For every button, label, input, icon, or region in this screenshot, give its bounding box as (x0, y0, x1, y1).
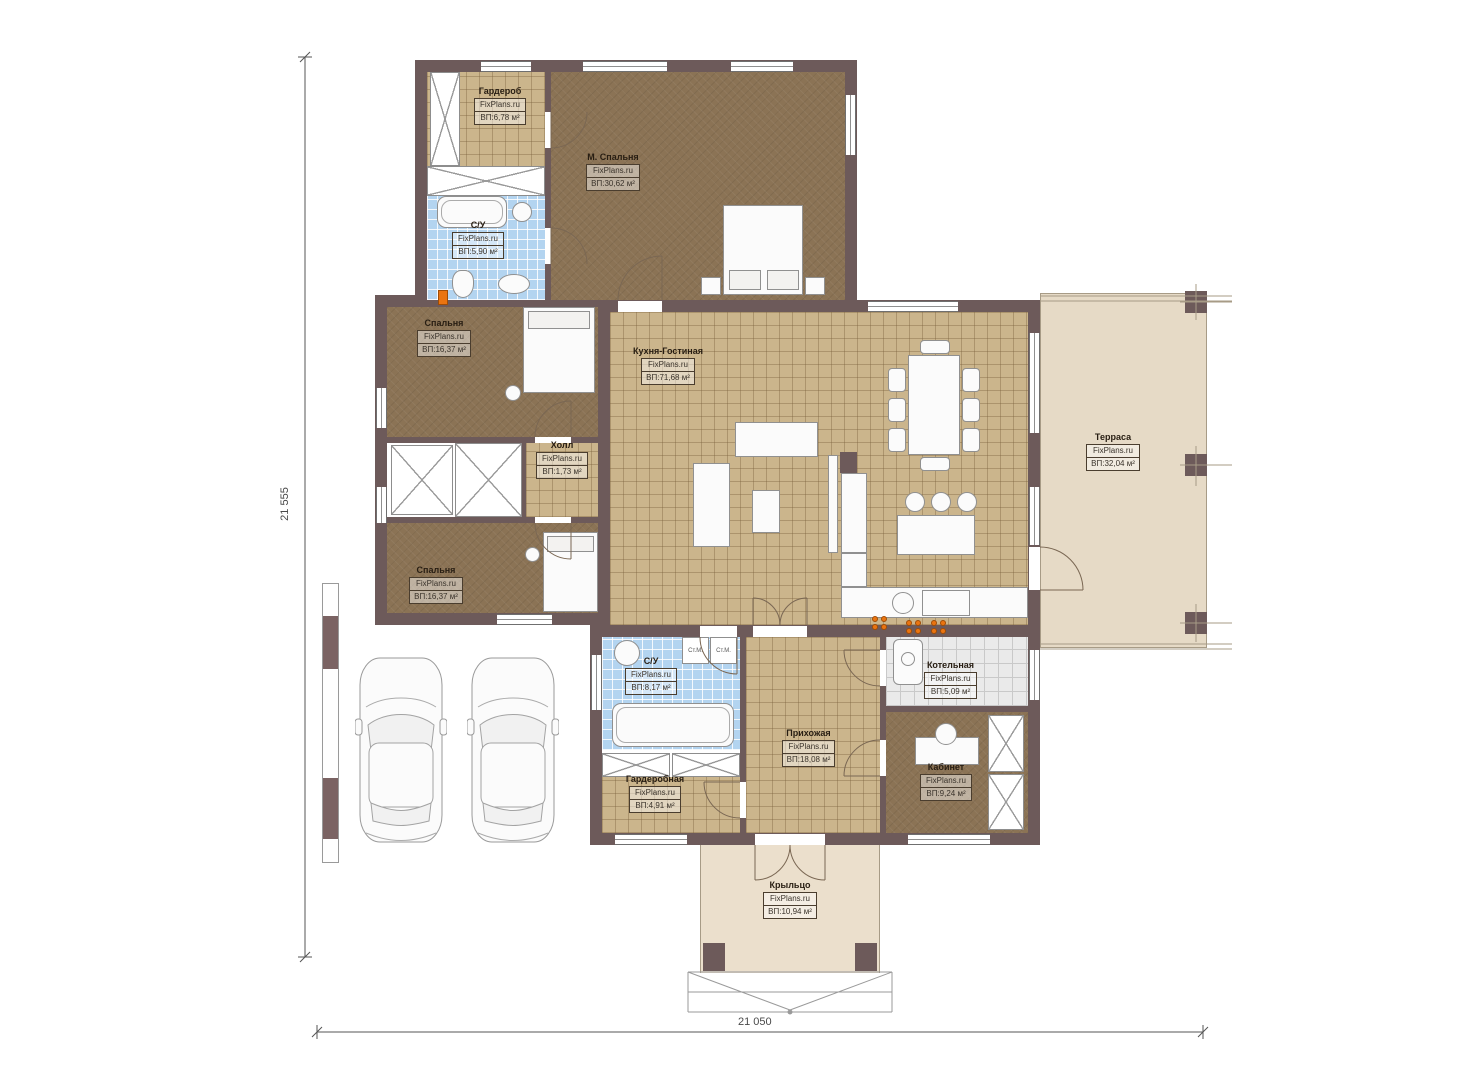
room-name: Спальня (417, 565, 456, 576)
toilet-symbol (452, 270, 474, 298)
room-name: Котельная (927, 660, 974, 671)
room-name: Терраса (1095, 432, 1131, 443)
window (481, 61, 531, 72)
room-name: Спальня (425, 318, 464, 329)
bathtub-symbol (612, 703, 734, 747)
wall-stub (840, 452, 857, 473)
nightstand-symbol (701, 277, 721, 295)
lamp-symbol (525, 547, 540, 562)
sink-symbol (498, 274, 530, 294)
window (497, 614, 552, 625)
room-name: Прихожая (786, 728, 830, 739)
washing-machine-label: Ст.М. (688, 648, 703, 654)
room-label-bedroom2: Спальня FixPlans.ruВП:16,37 м² (386, 565, 486, 604)
stool-symbol (905, 492, 925, 512)
window (1029, 333, 1040, 433)
burner-dot (881, 616, 887, 622)
stool-symbol (957, 492, 977, 512)
room-label-hall: Холл FixPlans.ruВП:1,73 м² (526, 440, 598, 479)
dining-table-symbol (908, 355, 960, 455)
watermark-text: FixPlans.ru (418, 331, 470, 344)
room-area: ВП:5,90 м² (453, 246, 503, 258)
watermark-text: FixPlans.ru (475, 99, 525, 112)
room-label-master: М. Спальня FixPlans.ruВП:30,62 м² (553, 152, 673, 191)
tall-cabinet-symbol (841, 473, 867, 553)
room-label-porch: Крыльцо FixPlans.ruВП:10,94 м² (740, 880, 840, 919)
room-label-terrace: Терраса FixPlans.ruВП:32,04 м² (1058, 432, 1168, 471)
tv-console-symbol (828, 455, 838, 553)
lamp-symbol (505, 385, 521, 401)
room-area: ВП:16,37 м² (418, 344, 470, 356)
chair-symbol (962, 428, 980, 452)
burner-dot (906, 628, 912, 634)
window (376, 487, 387, 523)
pillow-symbol (547, 536, 594, 552)
chair-symbol (920, 340, 950, 354)
wall-partition (886, 706, 1028, 712)
room-label-hallway: Прихожая FixPlans.ruВП:18,08 м² (756, 728, 861, 767)
burner-dot (940, 628, 946, 634)
room-name: С/У (471, 220, 486, 231)
watermark-text: FixPlans.ru (1087, 445, 1139, 458)
room-label-kitchen-living: Кухня-Гостиная FixPlans.ruВП:71,68 м² (608, 346, 728, 385)
window (845, 95, 856, 155)
car-icon (355, 655, 447, 845)
room-label-wardrobe2: Гардеробная FixPlans.ruВП:4,91 м² (600, 774, 710, 813)
watermark-text: FixPlans.ru (537, 453, 587, 466)
chair-symbol (888, 428, 906, 452)
dimension-height: 21 555 (279, 487, 291, 521)
room-label-bedroom1: Спальня FixPlans.ruВП:16,37 м² (394, 318, 494, 357)
wall-partition (387, 517, 535, 523)
room-label-cabinet: Кабинет FixPlans.ruВП:9,24 м² (896, 762, 996, 801)
closet-symbol (391, 445, 453, 515)
window (908, 834, 990, 845)
kitchen-sink-symbol (892, 592, 914, 614)
door-opening (880, 740, 886, 776)
watermark-text: FixPlans.ru (630, 787, 680, 800)
door-opening (880, 650, 886, 686)
watermark-text: FixPlans.ru (783, 741, 835, 754)
sofa-symbol (735, 422, 818, 457)
watermark-text: FixPlans.ru (921, 775, 971, 788)
floor-plan-canvas: Ст.М. Ст.М. (0, 0, 1474, 1080)
chair-symbol (920, 457, 950, 471)
window (1029, 487, 1040, 545)
pillow-symbol (729, 270, 761, 290)
room-name: Крыльцо (770, 880, 811, 891)
room-area: ВП:30,62 м² (587, 178, 639, 190)
window (731, 61, 793, 72)
closet-symbol (427, 166, 545, 196)
chair-symbol (888, 368, 906, 392)
door-opening (753, 626, 807, 637)
island-symbol (897, 515, 975, 555)
room-name: М. Спальня (587, 152, 638, 163)
room-label-boiler: Котельная FixPlans.ruВП:5,09 м² (898, 660, 1003, 699)
room-name: Кабинет (928, 762, 964, 773)
burner-dot (872, 624, 878, 630)
room-area: ВП:9,24 м² (921, 788, 971, 800)
wall-partition (571, 517, 598, 523)
coffee-table-symbol (752, 490, 780, 533)
burner-dot (915, 620, 921, 626)
door-opening (545, 228, 551, 264)
watermark-text: FixPlans.ru (587, 165, 639, 178)
terrace-post (1185, 454, 1207, 476)
room-area: ВП:8,17 м² (626, 682, 676, 694)
room-name: Холл (551, 440, 574, 451)
door-opening (1029, 547, 1040, 590)
dimension-width: 21 050 (738, 1016, 772, 1028)
room-label-su-bottom: С/У FixPlans.ruВП:8,17 м² (606, 656, 696, 695)
watermark-text: FixPlans.ru (764, 893, 816, 906)
window (868, 301, 958, 312)
chair-symbol (888, 398, 906, 422)
burner-dot (931, 620, 937, 626)
watermark-text: FixPlans.ru (410, 578, 462, 591)
window (615, 834, 687, 845)
room-area: ВП:18,08 м² (783, 754, 835, 766)
chair-symbol (962, 398, 980, 422)
room-area: ВП:4,91 м² (630, 800, 680, 812)
room-area: ВП:1,73 м² (537, 466, 587, 478)
washing-machine-label: Ст.М. (716, 648, 731, 654)
chair-symbol (962, 368, 980, 392)
pillow-symbol (767, 270, 799, 290)
room-name: Кухня-Гостиная (633, 346, 703, 357)
room-area: ВП:16,37 м² (410, 591, 462, 603)
room-name: Гардеробная (626, 774, 684, 785)
terrace-post (1185, 291, 1207, 313)
nightstand-symbol (805, 277, 825, 295)
door-opening (618, 301, 662, 312)
cabinet-symbol (841, 553, 867, 587)
closet-symbol (455, 443, 522, 517)
fence-segment (322, 583, 339, 863)
room-name: Гардероб (479, 86, 522, 97)
room-area: ВП:6,78 м² (475, 112, 525, 124)
burner-dot (940, 620, 946, 626)
car-icon (467, 655, 559, 845)
door-opening (700, 626, 737, 637)
room-label-garderob: Гардероб FixPlans.ruВП:6,78 м² (452, 86, 548, 125)
pillow-symbol (528, 311, 590, 329)
washing-machine-symbol: Ст.М. (710, 637, 737, 664)
washbasin-symbol (512, 202, 532, 222)
window (583, 61, 667, 72)
burner-dot (906, 620, 912, 626)
burner-dot (915, 628, 921, 634)
burner-dot (881, 624, 887, 630)
porch-post (855, 943, 877, 971)
room-name: С/У (644, 656, 659, 667)
watermark-text: FixPlans.ru (925, 673, 975, 686)
stool-symbol (931, 492, 951, 512)
room-area: ВП:71,68 м² (642, 372, 694, 384)
window (376, 388, 387, 428)
terrace-post (1185, 612, 1207, 634)
porch-post (703, 943, 725, 971)
watermark-text: FixPlans.ru (642, 359, 694, 372)
room-area: ВП:10,94 м² (764, 906, 816, 918)
stove-symbol (922, 590, 970, 616)
room-area: ВП:5,09 м² (925, 686, 975, 698)
door-opening (740, 782, 746, 818)
burner-dot (931, 628, 937, 634)
room-area: ВП:32,04 м² (1087, 458, 1139, 470)
window (1029, 650, 1040, 700)
burner-dot (872, 616, 878, 622)
watermark-text: FixPlans.ru (453, 233, 503, 246)
door-opening (755, 834, 825, 845)
radiator-symbol (438, 290, 448, 305)
window (591, 655, 602, 710)
chair-symbol (935, 723, 957, 745)
sofa-symbol (693, 463, 730, 547)
watermark-text: FixPlans.ru (626, 669, 676, 682)
room-label-su-top: С/У FixPlans.ruВП:5,90 м² (430, 220, 526, 259)
